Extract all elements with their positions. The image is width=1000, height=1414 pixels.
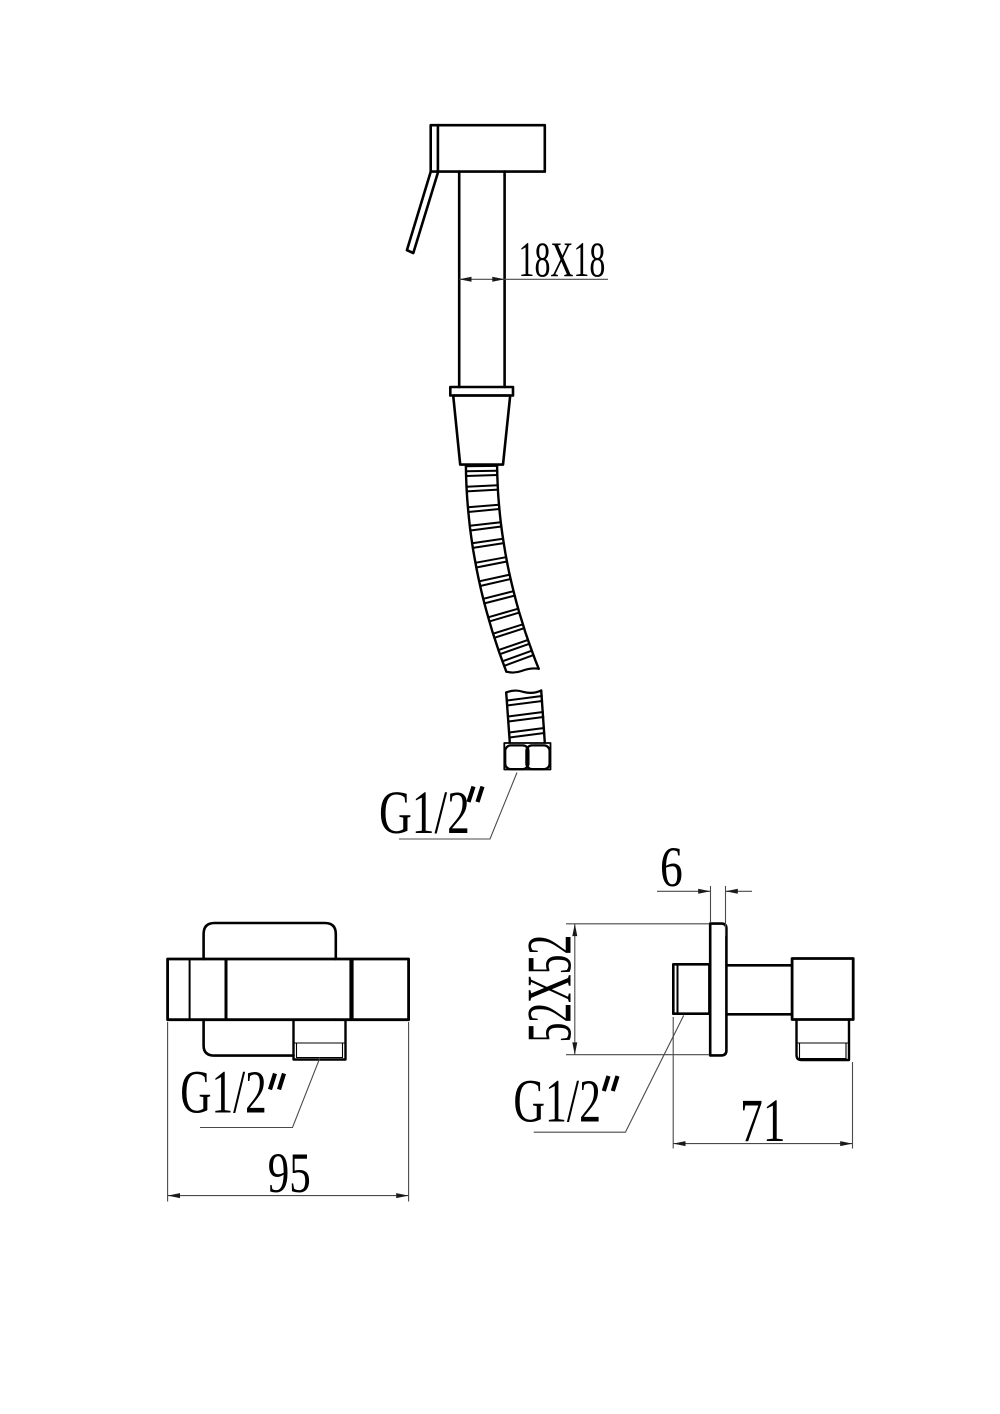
svg-text:G1/2: G1/2 xyxy=(513,1069,601,1136)
svg-text:6: 6 xyxy=(660,836,683,899)
svg-text:95: 95 xyxy=(268,1141,311,1204)
svg-text:G1/2: G1/2 xyxy=(180,1059,266,1126)
svg-text:52X52: 52X52 xyxy=(514,935,585,1042)
svg-text:71: 71 xyxy=(740,1087,786,1155)
svg-text:18X18: 18X18 xyxy=(519,233,606,288)
svg-text:G1/2: G1/2 xyxy=(379,779,470,847)
